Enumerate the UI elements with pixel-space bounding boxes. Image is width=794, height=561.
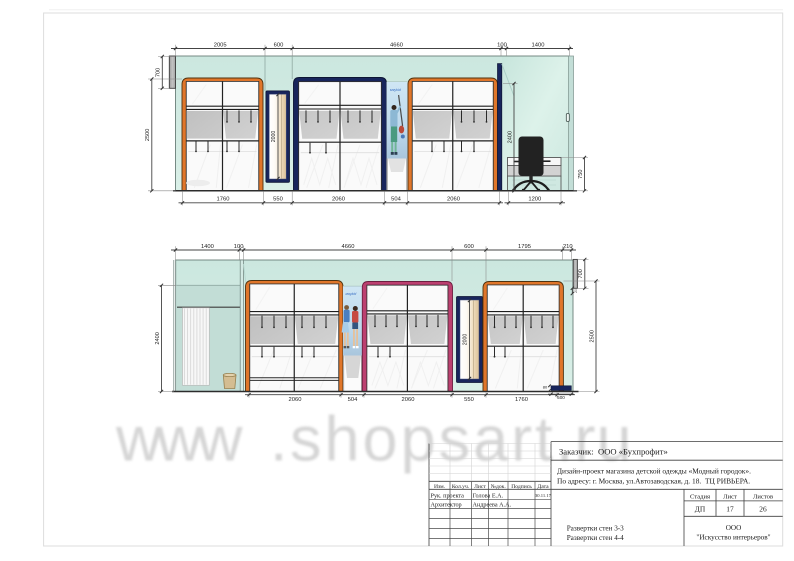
svg-text:2005: 2005: [214, 42, 227, 48]
svg-text:1400: 1400: [201, 244, 214, 250]
svg-text:2000: 2000: [271, 131, 277, 143]
svg-text:1200: 1200: [528, 197, 541, 203]
svg-text:550: 550: [273, 197, 283, 203]
svg-text:№док.: №док.: [491, 484, 507, 490]
svg-text:Кол.уч.: Кол.уч.: [452, 484, 470, 490]
svg-text:100: 100: [497, 42, 507, 48]
svg-text:1760: 1760: [515, 397, 528, 403]
svg-text:26: 26: [759, 505, 767, 514]
svg-text:ООО: ООО: [726, 524, 742, 532]
svg-text:1400: 1400: [532, 42, 545, 48]
svg-text:2060: 2060: [289, 397, 302, 403]
svg-text:Дизайн-проект магазина детской: Дизайн-проект магазина детской одежды «М…: [557, 467, 751, 476]
svg-text:600: 600: [274, 42, 284, 48]
svg-text:Заказчик: ООО «Бухпрофит»: Заказчик: ООО «Бухпрофит»: [559, 447, 668, 457]
svg-text:Листов: Листов: [753, 493, 773, 500]
svg-text:2060: 2060: [402, 397, 415, 403]
svg-text:2000: 2000: [463, 334, 469, 346]
svg-text:Развертки стен 4-4: Развертки стен 4-4: [567, 534, 624, 542]
svg-text:www.shopsart.ru: www.shopsart.ru: [115, 405, 633, 475]
svg-text:20: 20: [574, 289, 578, 293]
svg-text:504: 504: [391, 197, 401, 203]
svg-text:Андреева А.А.: Андреева А.А.: [473, 502, 512, 509]
svg-text:700: 700: [578, 269, 584, 278]
svg-text:мяуkid: мяуkid: [346, 292, 358, 296]
svg-text:Стадия: Стадия: [690, 493, 710, 500]
svg-text:2060: 2060: [332, 197, 345, 203]
svg-text:4660: 4660: [390, 42, 403, 48]
svg-text:мяуkid: мяуkid: [390, 88, 402, 92]
svg-text:30.11.17: 30.11.17: [535, 493, 552, 498]
svg-text:Голова Е.А.: Голова Е.А.: [473, 492, 504, 499]
svg-text:1760: 1760: [217, 197, 230, 203]
svg-text:550: 550: [464, 397, 474, 403]
svg-text:Лист: Лист: [723, 493, 737, 500]
svg-text:Подпись: Подпись: [511, 484, 532, 490]
svg-text:600: 600: [464, 244, 474, 250]
svg-text:2400: 2400: [155, 332, 161, 344]
svg-text:2500: 2500: [145, 129, 151, 141]
svg-text:700: 700: [156, 68, 162, 77]
svg-text:750: 750: [578, 169, 584, 178]
svg-text:Рук. проекта: Рук. проекта: [431, 492, 465, 499]
svg-text:1795: 1795: [518, 244, 531, 250]
svg-text:504: 504: [348, 397, 358, 403]
svg-text:17: 17: [726, 505, 734, 514]
svg-text:80: 80: [543, 385, 548, 390]
svg-text:2400: 2400: [507, 131, 513, 143]
svg-text:4660: 4660: [342, 244, 355, 250]
svg-text:2500: 2500: [589, 330, 595, 342]
svg-text:Архитектор: Архитектор: [431, 502, 462, 509]
svg-text:Лист: Лист: [474, 484, 486, 490]
svg-text:Изм.: Изм.: [434, 484, 446, 490]
svg-text:"Искусство интерьеров": "Искусство интерьеров": [696, 534, 770, 542]
svg-text:500: 500: [557, 395, 565, 400]
svg-text:210: 210: [563, 244, 573, 250]
svg-text:ДП: ДП: [695, 505, 706, 514]
svg-text:100: 100: [234, 244, 244, 250]
svg-text:Дата: Дата: [537, 484, 549, 490]
svg-text:По адресу: г. Москва, ул.Автоз: По адресу: г. Москва, ул.Автозаводская, …: [557, 476, 750, 485]
svg-text:2060: 2060: [447, 197, 460, 203]
svg-text:Развертки стен 3-3: Развертки стен 3-3: [567, 525, 624, 533]
